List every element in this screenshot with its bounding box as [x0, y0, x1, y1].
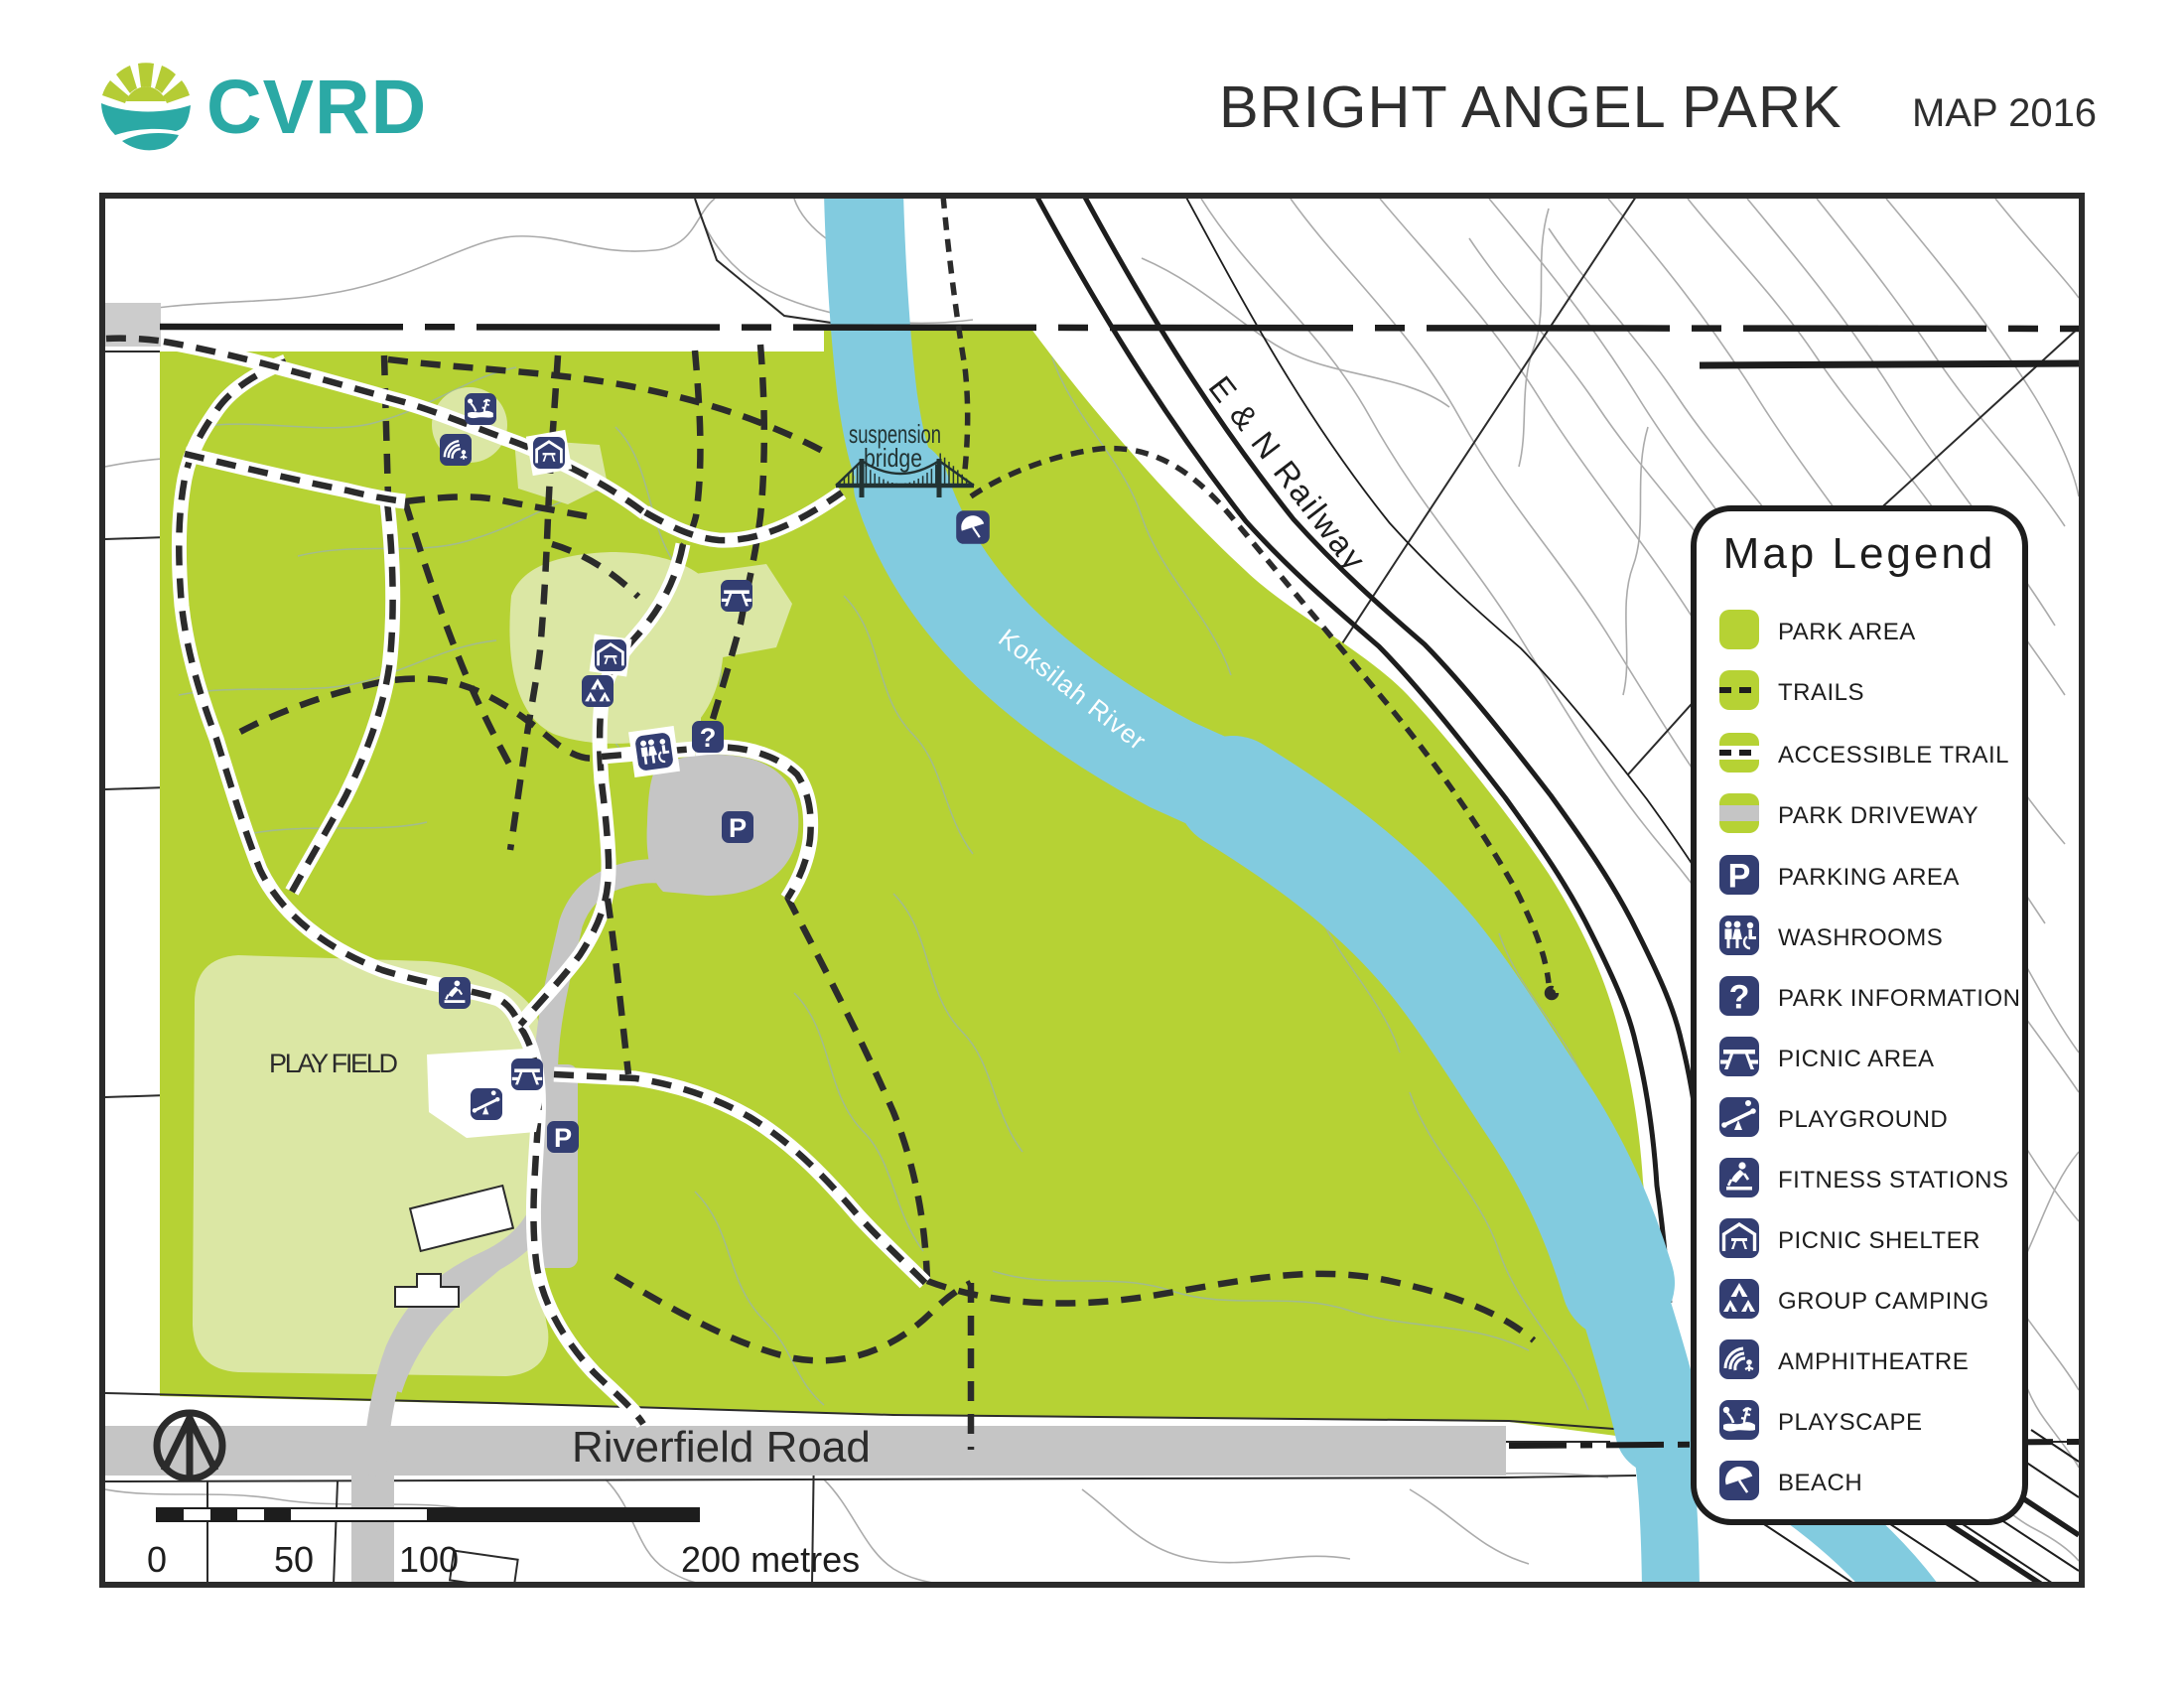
- svg-text:PICNIC AREA: PICNIC AREA: [1778, 1046, 1935, 1072]
- svg-text:BEACH: BEACH: [1778, 1470, 1862, 1496]
- svg-text:0: 0: [147, 1539, 167, 1580]
- svg-text:FITNESS STATIONS: FITNESS STATIONS: [1778, 1167, 2008, 1194]
- svg-text:GROUP CAMPING: GROUP CAMPING: [1778, 1288, 1989, 1315]
- svg-text:AMPHITHEATRE: AMPHITHEATRE: [1778, 1348, 1969, 1375]
- svg-text:PICNIC SHELTER: PICNIC SHELTER: [1778, 1227, 1980, 1254]
- svg-text:ACCESSIBLE TRAIL: ACCESSIBLE TRAIL: [1778, 742, 2009, 769]
- svg-text:Riverfield Road: Riverfield Road: [572, 1423, 871, 1472]
- svg-text:BRIGHT ANGEL PARK: BRIGHT ANGEL PARK: [1219, 73, 1843, 140]
- svg-text:50: 50: [274, 1539, 314, 1580]
- svg-text:PARK AREA: PARK AREA: [1778, 619, 1916, 645]
- svg-text:100: 100: [399, 1539, 459, 1580]
- svg-text:PLAYGROUND: PLAYGROUND: [1778, 1106, 1948, 1133]
- svg-text:PLAY FIELD: PLAY FIELD: [269, 1049, 398, 1078]
- svg-text:Map Legend: Map Legend: [1723, 529, 1996, 578]
- svg-text:200 metres: 200 metres: [681, 1539, 860, 1580]
- svg-text:MAP 2016: MAP 2016: [1912, 91, 2097, 135]
- svg-text:PARK DRIVEWAY: PARK DRIVEWAY: [1778, 802, 1979, 829]
- svg-text:CVRD: CVRD: [206, 65, 427, 150]
- svg-text:PARKING AREA: PARKING AREA: [1778, 864, 1960, 891]
- svg-text:WASHROOMS: WASHROOMS: [1778, 924, 1943, 951]
- svg-text:TRAILS: TRAILS: [1778, 679, 1864, 706]
- svg-text:PLAYSCAPE: PLAYSCAPE: [1778, 1409, 1922, 1436]
- svg-text:PARK INFORMATION: PARK INFORMATION: [1778, 985, 2020, 1012]
